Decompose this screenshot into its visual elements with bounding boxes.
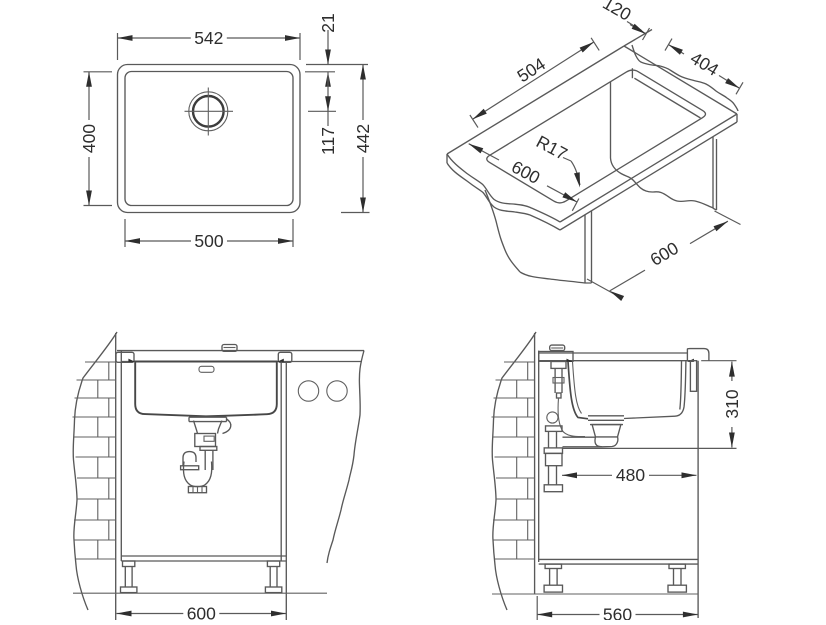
svg-text:117: 117	[318, 127, 338, 155]
svg-text:504: 504	[514, 54, 550, 87]
svg-text:600: 600	[187, 604, 216, 621]
svg-text:500: 500	[194, 231, 223, 251]
svg-text:542: 542	[194, 28, 223, 48]
svg-text:600: 600	[647, 238, 683, 270]
svg-text:310: 310	[722, 389, 742, 418]
svg-text:R17: R17	[533, 131, 571, 164]
svg-text:400: 400	[79, 124, 99, 153]
svg-text:560: 560	[603, 605, 632, 621]
svg-text:600: 600	[508, 156, 543, 188]
svg-text:442: 442	[353, 124, 373, 153]
svg-text:404: 404	[687, 48, 723, 80]
svg-text:120: 120	[599, 0, 635, 25]
svg-text:21: 21	[318, 13, 338, 32]
svg-text:480: 480	[616, 465, 645, 485]
